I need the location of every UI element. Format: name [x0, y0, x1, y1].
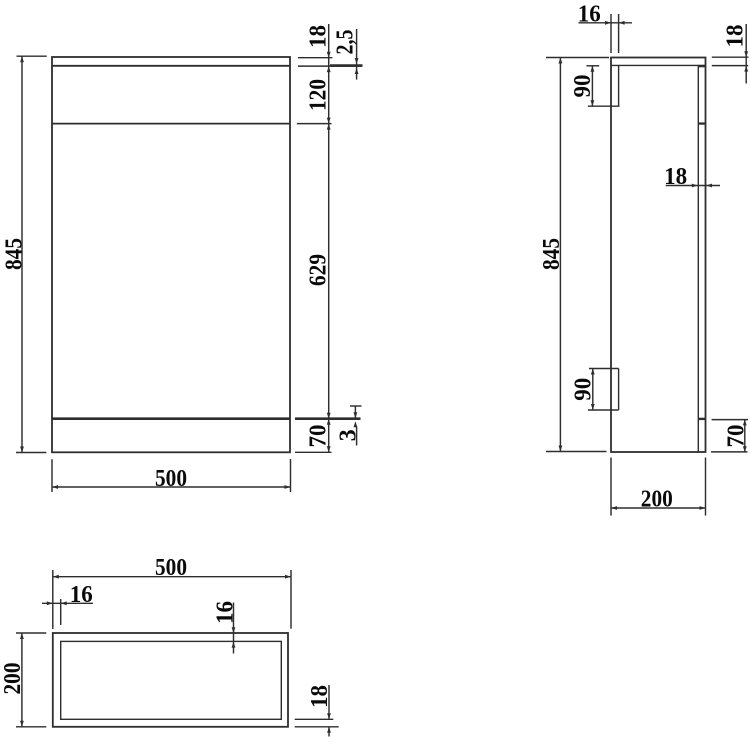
- svg-text:70: 70: [724, 425, 750, 448]
- svg-text:18: 18: [307, 685, 333, 708]
- svg-text:200: 200: [0, 663, 26, 695]
- svg-text:90: 90: [570, 75, 596, 98]
- svg-text:500: 500: [155, 466, 187, 492]
- svg-text:629: 629: [306, 254, 332, 286]
- svg-text:845: 845: [1, 238, 27, 270]
- svg-text:18: 18: [722, 25, 748, 48]
- svg-text:18: 18: [306, 25, 332, 48]
- svg-text:70: 70: [306, 425, 332, 448]
- svg-text:18: 18: [664, 164, 687, 190]
- svg-text:500: 500: [155, 555, 187, 581]
- svg-text:90: 90: [570, 378, 596, 401]
- svg-text:200: 200: [641, 487, 673, 513]
- svg-text:16: 16: [578, 2, 601, 28]
- svg-text:2,5: 2,5: [332, 30, 358, 55]
- svg-text:16: 16: [70, 582, 93, 608]
- svg-text:3: 3: [335, 429, 361, 441]
- svg-text:845: 845: [539, 238, 565, 270]
- svg-text:120: 120: [306, 79, 332, 111]
- svg-text:16: 16: [212, 601, 238, 624]
